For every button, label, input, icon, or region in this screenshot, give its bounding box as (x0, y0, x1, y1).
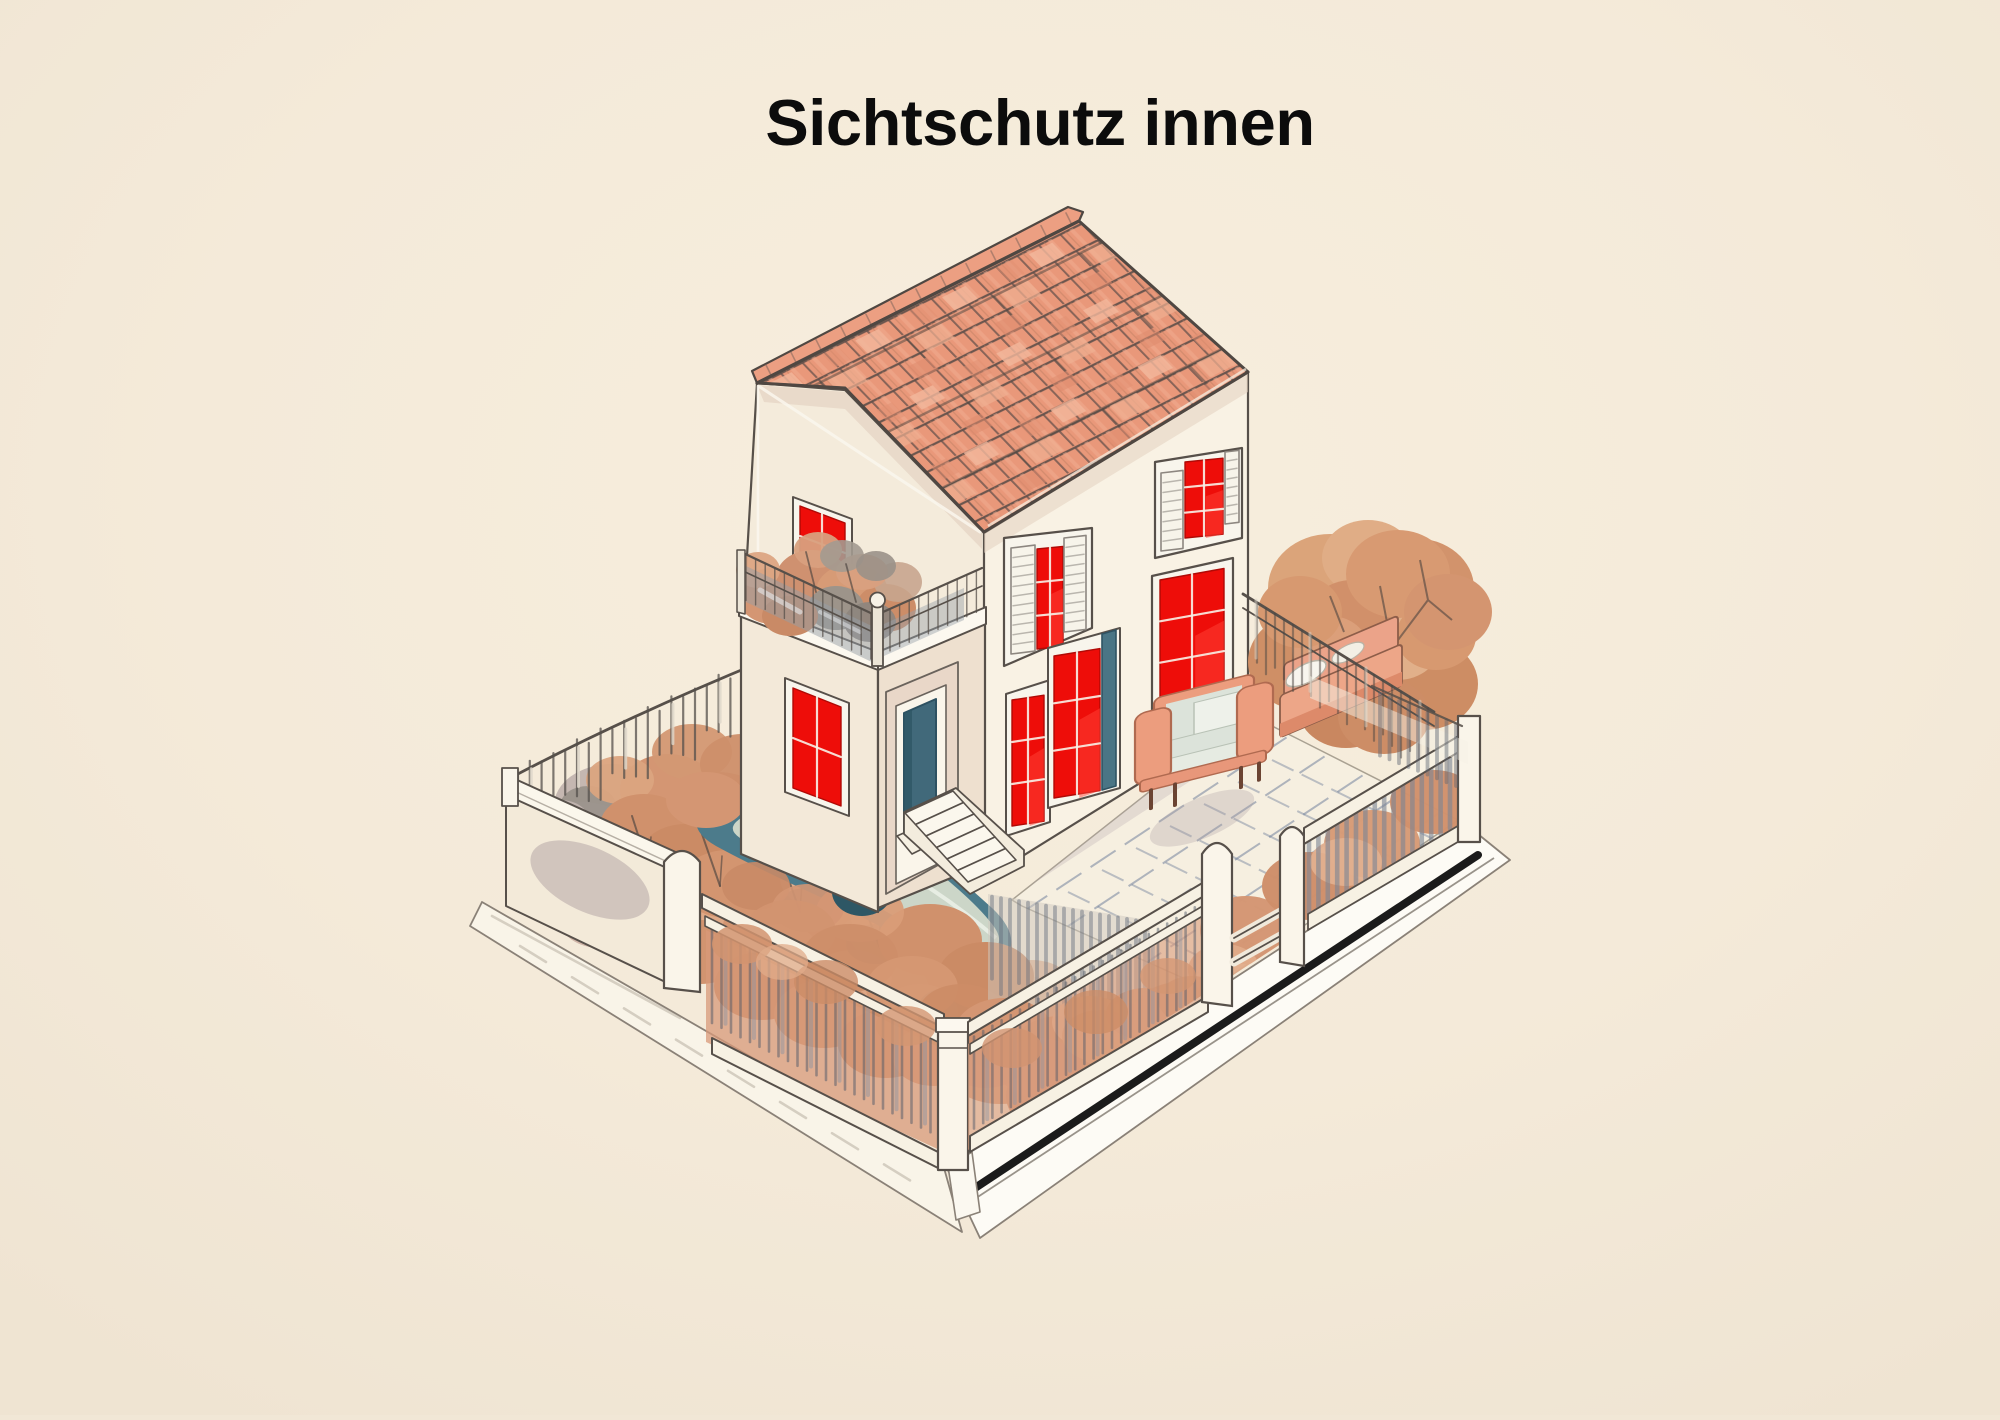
svg-text:Sichtschutz innen: Sichtschutz innen (765, 86, 1314, 159)
